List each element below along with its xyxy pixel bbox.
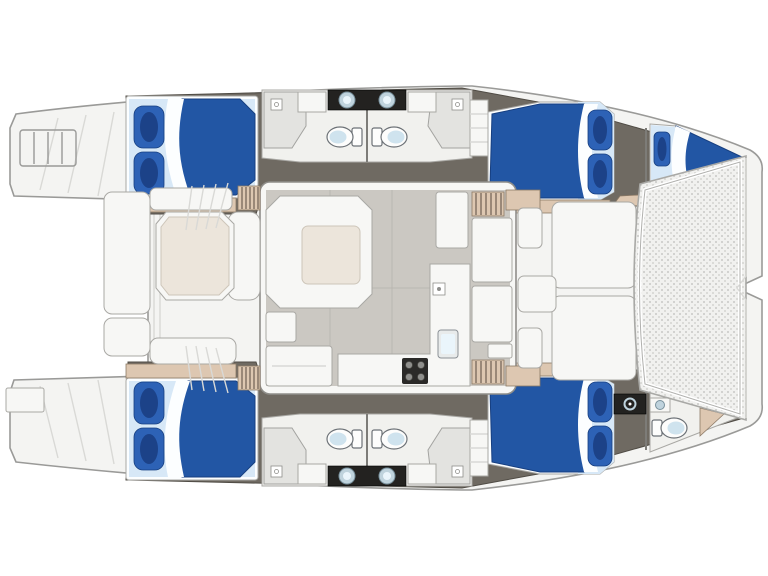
galley-stove (402, 358, 428, 384)
forward-console (518, 276, 556, 312)
stern-locker (6, 388, 44, 412)
floorplan-svg (0, 0, 768, 576)
forward-seat (518, 208, 542, 248)
forward-sunpad (552, 202, 636, 288)
salon-cabinet (266, 312, 296, 342)
cockpit-bench (104, 192, 150, 314)
cockpit-bench (150, 338, 236, 364)
bow-trampoline (634, 156, 746, 420)
galley-cabinet (488, 344, 512, 358)
salon-sofa (266, 196, 372, 308)
forward-sunpad (552, 296, 636, 380)
toilet (652, 418, 687, 438)
forward-seat (518, 328, 542, 368)
salon-table (302, 226, 360, 284)
galley-cabinet (472, 286, 512, 342)
cockpit-bench (104, 318, 150, 356)
galley-cabinet (472, 218, 512, 282)
catamaran-floorplan (0, 0, 768, 576)
galley-island (436, 192, 468, 248)
cockpit-table (156, 212, 234, 300)
